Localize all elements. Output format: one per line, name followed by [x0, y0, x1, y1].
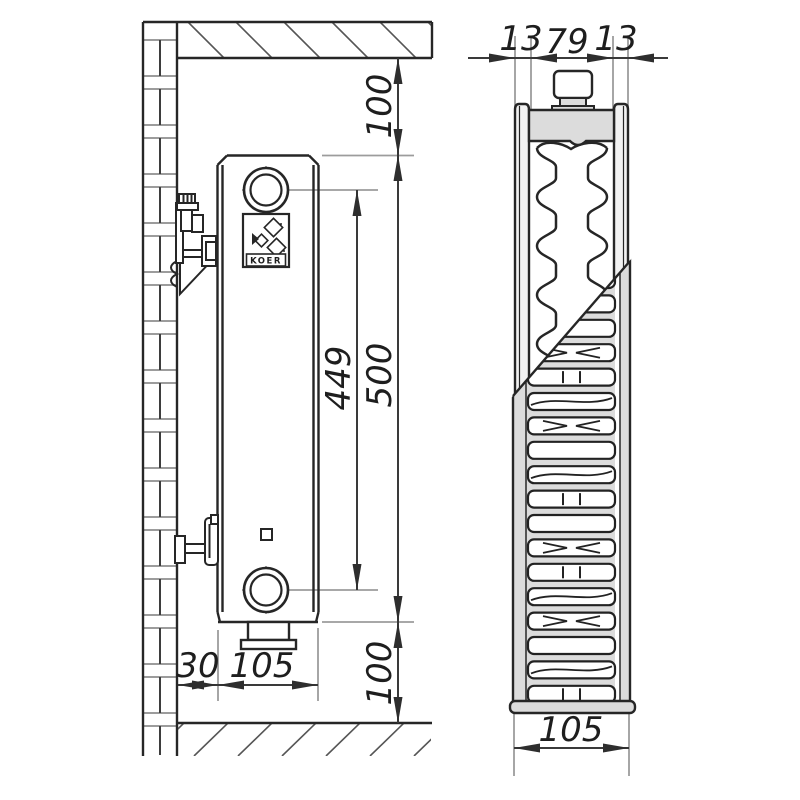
ceiling-hatch	[140, 22, 464, 58]
thermostat-port	[261, 529, 272, 540]
bracket-hook	[205, 518, 218, 565]
water-header	[529, 110, 614, 145]
ceiling-beam	[140, 22, 464, 58]
dim-connection-spacing: 449	[319, 346, 359, 411]
dim-wall-gap: 30	[176, 646, 219, 686]
radiator-foot	[241, 622, 296, 649]
top-air-vent	[244, 168, 288, 212]
wall-bracket-bottom	[175, 515, 218, 565]
radiator-side-view: KOER	[218, 156, 319, 650]
bottom-drain-valve	[244, 568, 288, 612]
dim-total-depth: 105	[539, 710, 604, 750]
dim-bottom-clearance: 100	[360, 641, 400, 706]
dim-depth: 105	[230, 646, 295, 686]
brick-courses	[144, 40, 176, 755]
section-view	[468, 36, 668, 776]
bleed-valve	[552, 71, 594, 112]
drawing-canvas: KOER 100 500 449 100	[0, 0, 800, 800]
floor	[150, 723, 492, 756]
dim-rear-panel: 13	[499, 19, 542, 59]
rear-panel	[515, 104, 529, 402]
bracket-wall-plate	[175, 536, 185, 563]
brick-wall	[143, 22, 177, 756]
logo-text: KOER	[250, 257, 282, 267]
radiator-technical-drawing: KOER 100 500 449 100	[0, 0, 800, 800]
floor-hatch	[150, 723, 492, 756]
dim-height: 500	[360, 343, 400, 408]
koer-logo: KOER	[243, 214, 289, 267]
dim-front-panel: 13	[594, 19, 637, 59]
